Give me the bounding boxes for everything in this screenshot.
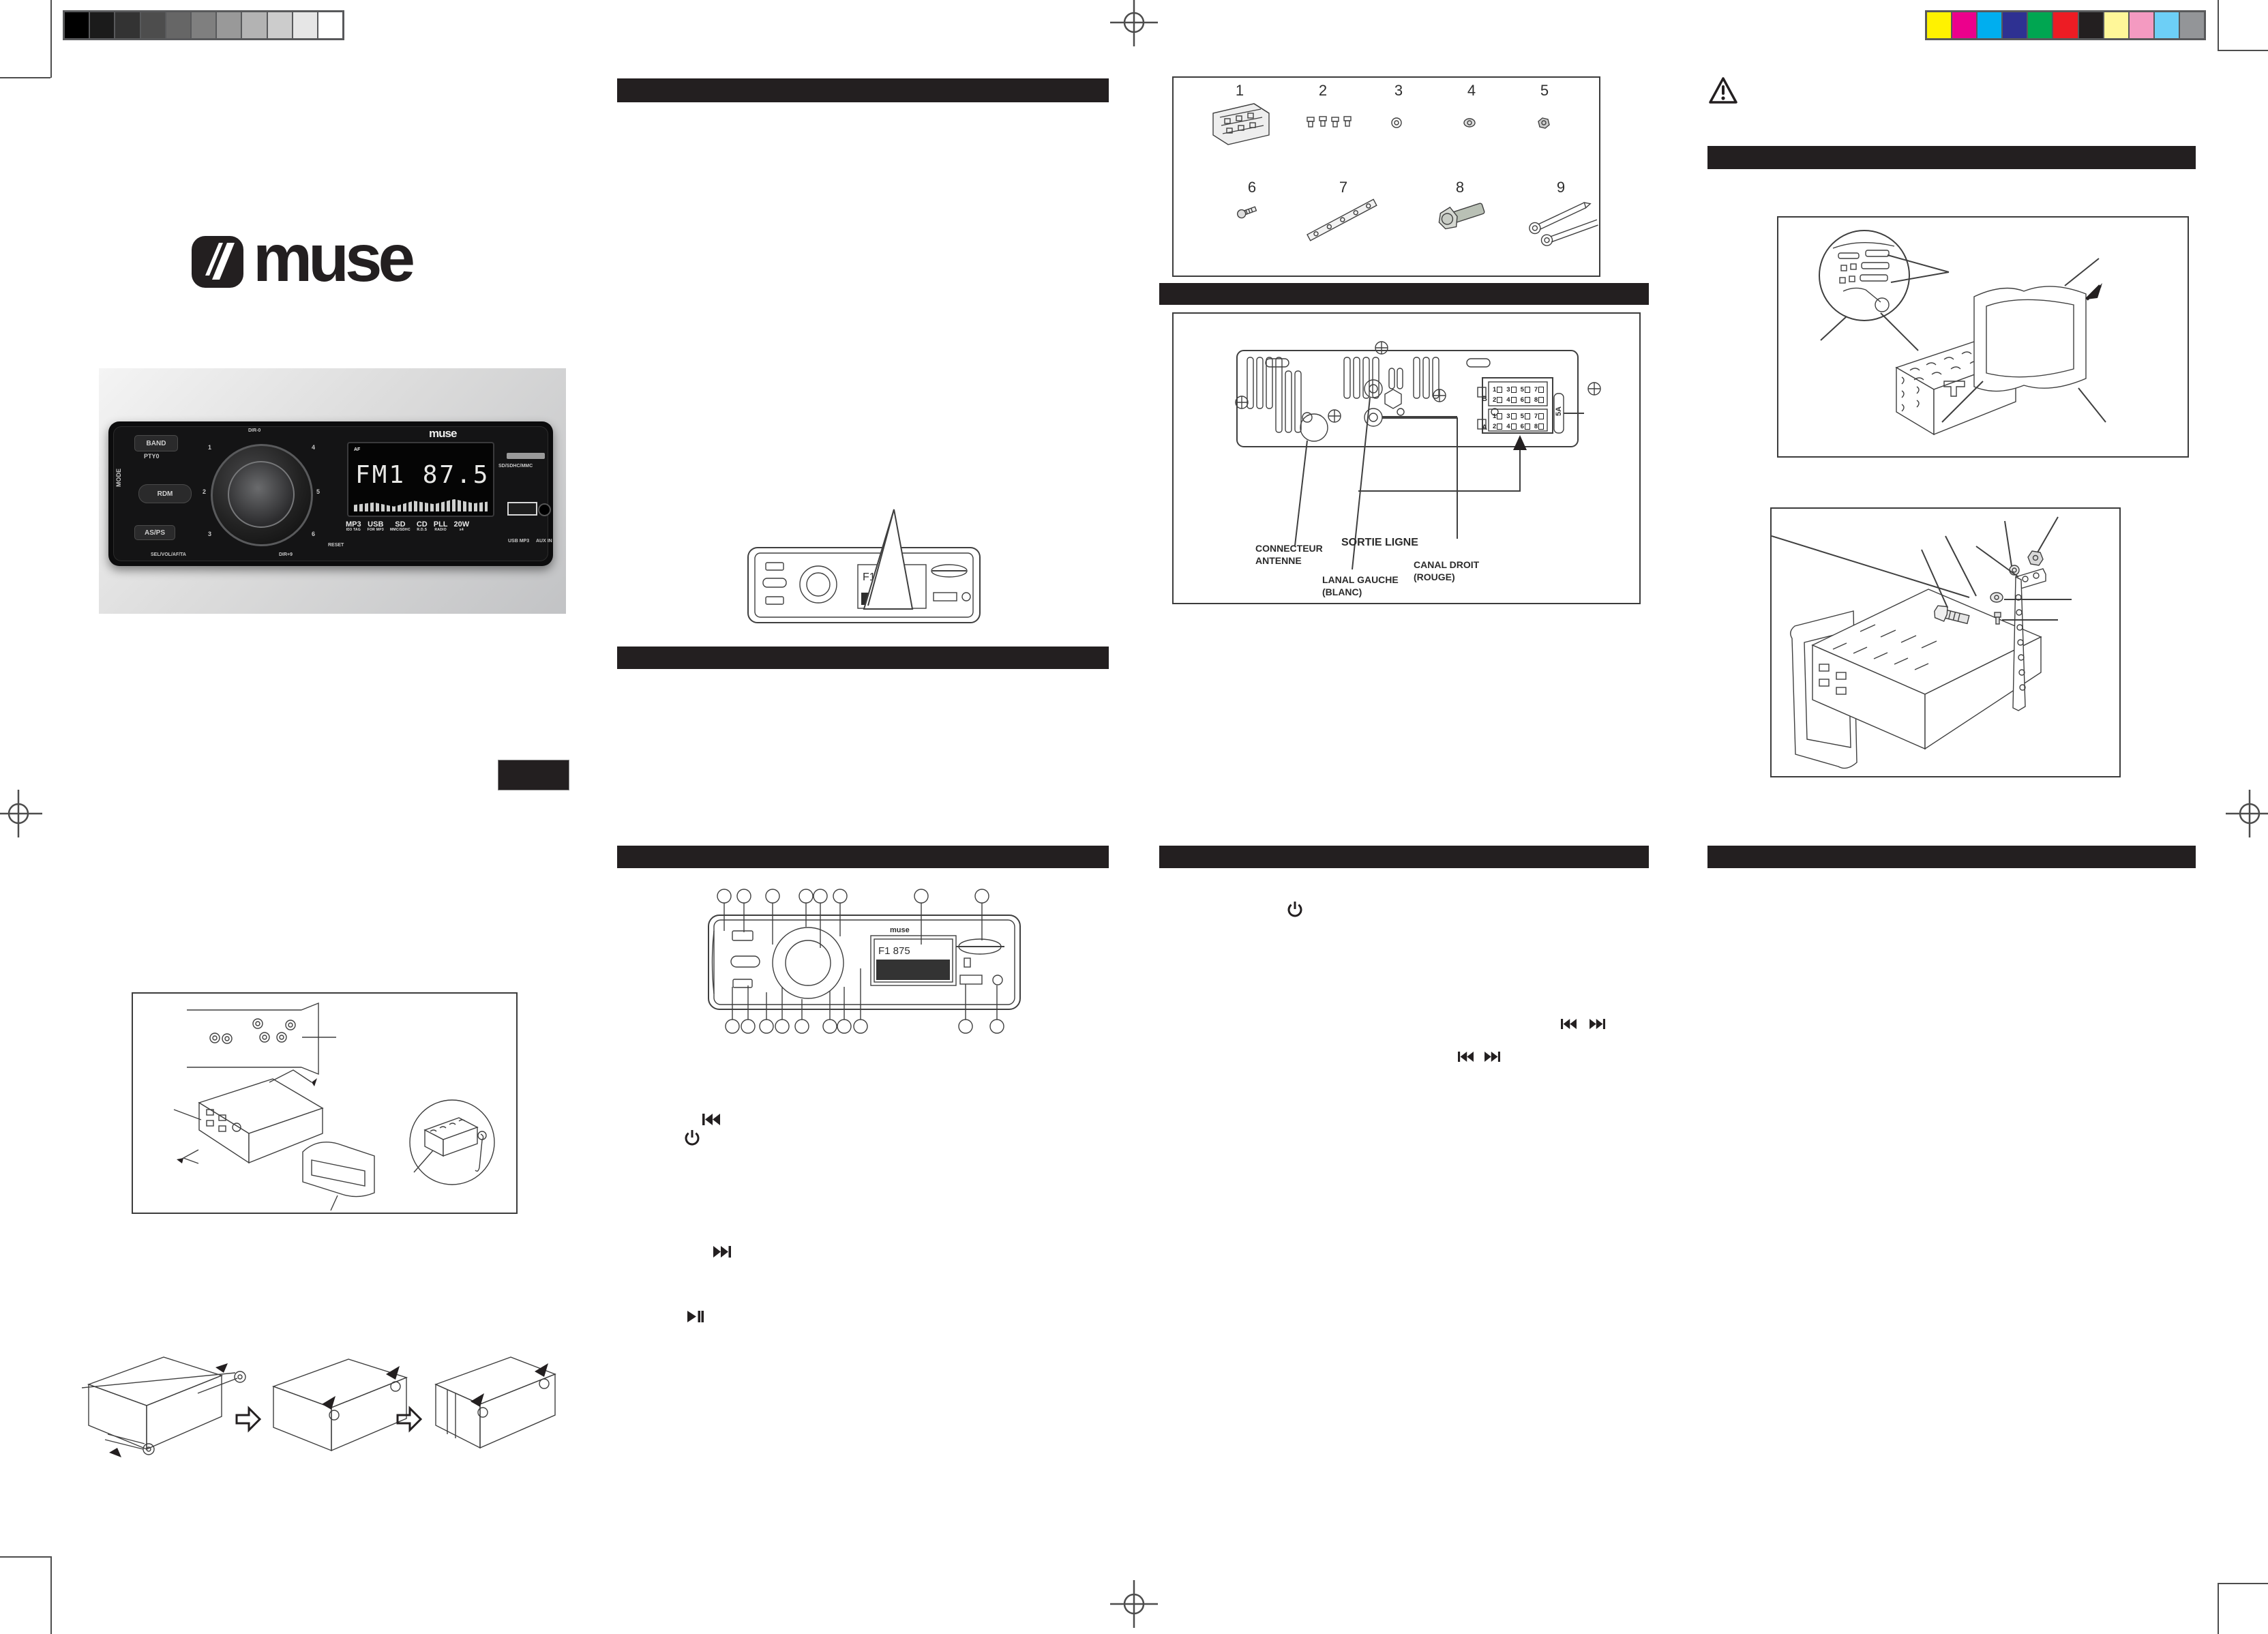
dir-minus-label: DIR-0 [248,428,260,433]
volume-knob [211,444,313,546]
display-equalizer [354,495,488,511]
aux-label: AUX IN [536,539,552,544]
mini-stereo-diagram: muse F1 875 [747,508,982,627]
section-bar-col2-2 [617,647,1109,669]
skip-back-icon-col3b [1457,1052,1474,1062]
pin-number: 4 [1506,396,1516,404]
step-arrow-2 [398,1408,421,1430]
product-photo: BAND PTY0 MODE RDM AS/PS 1 2 3 4 5 6 DIR… [99,368,566,614]
preset-2: 2 [203,488,206,495]
calibration-swatch [1952,12,1978,38]
pin-number: 3 [1506,413,1516,420]
calibration-swatch [217,12,242,38]
preset-6: 6 [312,531,315,537]
manual-page: muse BAND PTY0 MODE RDM AS/PS 1 2 3 4 5 … [0,0,2268,1634]
photo-display: AF FM1 87.5 [347,442,494,517]
crop-mark-bottom-right [2218,1583,2219,1634]
sel-vol-caption: SEL/VOL/AF/TA [151,552,186,557]
calibration-swatch [2028,12,2053,38]
feature-badge: MP3ID3 TAG [346,521,361,532]
section-bar-col4-1 [1707,146,2196,169]
calibration-swatch [90,12,115,38]
power-icon [684,1129,700,1146]
pin-row-a1: 1357 [1493,413,1544,420]
asps-button: AS/PS [134,525,175,540]
pin-number: 5 [1521,413,1530,420]
crop-mark-bottom-left [50,1556,52,1634]
aux-jack [538,503,551,516]
preset-4: 4 [312,444,315,451]
pin-number: 8 [1534,396,1544,404]
feature-badge: USBFOR MP3 [368,521,384,532]
play-pause-icon [687,1311,704,1322]
bracket-mounting-box [1770,507,2121,777]
calibration-swatch [2155,12,2180,38]
registration-mark-right-middle [2219,783,2268,844]
skip-back-icon-col3a [1560,1019,1577,1029]
feature-badge: CDR.D.S [417,521,428,532]
preset-5: 5 [316,488,320,495]
line-out-label: SORTIE LIGNE [1341,536,1418,550]
pin-number: 3 [1506,386,1516,393]
right-channel-label: CANAL DROIT(ROUGE) [1414,559,1479,583]
svg-text:muse: muse [890,926,910,934]
color-calibration-bar [1925,10,2206,40]
section-bar-col2-3 [617,846,1109,868]
calibration-swatch [318,12,342,38]
display-frequency: FM1 87.5 [355,461,490,489]
calibration-swatch [166,12,192,38]
feature-badge: SDMMC/SDHC [390,521,411,532]
calibration-swatch [2130,12,2155,38]
svg-text:F1 875: F1 875 [878,945,910,957]
svg-text:A: A [1482,424,1487,432]
preset-3: 3 [208,531,211,537]
section-bar-col3-1 [1159,283,1649,305]
calibration-swatch [141,12,166,38]
install-overview-drawing [133,994,516,1213]
svg-text:B: B [1482,395,1487,403]
usb-port [507,502,537,516]
pin-number: 6 [1521,423,1530,430]
rdm-button: RDM [138,484,192,503]
photo-muse-logo: muse [429,427,456,441]
pin-row-b2: 2468 [1493,396,1544,404]
calibration-swatch [2053,12,2078,38]
calibration-swatch [242,12,267,38]
skip-forward-icon-col3a [1589,1019,1606,1029]
pin-row-a2: 2468 [1493,423,1544,430]
calibration-swatch [2180,12,2204,38]
rear-connections-box: 5A B A 1357 2468 1357 2468 CONNECTEURANT… [1172,312,1641,604]
crop-mark-top-left [50,0,52,78]
pin-number: 1 [1493,413,1502,420]
sd-label: SD/SDHC/MMC [498,464,533,469]
calibration-swatch [268,12,293,38]
calibration-swatch [65,12,90,38]
skip-forward-icon-col3b [1484,1052,1501,1062]
crop-mark-top-right [2218,0,2219,51]
section-bar-col4-2 [1707,846,2196,868]
svg-text:5A: 5A [1555,406,1563,416]
warning-icon [1708,76,1738,106]
calibration-swatch [2003,12,2028,38]
preset-1: 1 [208,444,211,451]
removal-steps-diagram [82,1347,559,1463]
calibration-swatch [1978,12,2003,38]
display-af: AF [354,447,360,452]
registration-mark-left-middle [0,783,49,844]
mode-label: MODE [115,469,122,487]
antenna-label: CONNECTEURANTENNE [1255,543,1323,567]
feature-badge: PLLRADIO [434,521,448,532]
removal-step-3 [436,1357,555,1448]
rear-panel-drawing: 5A B A [1174,314,1639,603]
dir-plus-label: DIR+9 [279,552,293,557]
car-radio-photo: BAND PTY0 MODE RDM AS/PS 1 2 3 4 5 6 DIR… [108,421,553,566]
pin-number: 7 [1534,413,1544,420]
calibration-swatch [115,12,140,38]
bracket-mounting-drawing [1772,509,2119,776]
language-marker-box [498,760,569,790]
sleeve-installation-drawing [1778,218,2188,456]
power-icon-col3 [1287,900,1303,918]
skip-forward-icon [713,1246,731,1258]
antenna-connector [1300,414,1328,441]
calibration-swatch [1927,12,1952,38]
sleeve-installation-box [1777,216,2189,458]
usb-label: USB MP3 [508,539,529,544]
removal-step-1 [82,1357,245,1457]
front-panel-callout-diagram: muse F1 875 [702,883,1030,1040]
muse-logo-icon [192,236,243,288]
cutout-screws [210,1019,295,1043]
pty-label: PTY0 [144,453,160,460]
install-overview-box [132,992,518,1214]
registration-mark-top-center [1103,0,1165,53]
pin-number: 7 [1534,386,1544,393]
pin-number: 1 [1493,386,1502,393]
calibration-swatch [2104,12,2130,38]
feature-badge: 20Wx4 [454,521,470,532]
calibration-swatch [293,12,318,38]
left-channel-label: LANAL GAUCHE(BLANC) [1322,574,1399,598]
reset-label: RESET [328,543,344,548]
band-button: BAND [134,435,178,451]
supplied-parts-box: 1 2 3 4 5 6 7 8 9 [1172,76,1600,277]
pin-number: 2 [1493,423,1502,430]
parts-illustrations [1174,78,1599,276]
muse-logo-word: muse [253,234,411,282]
pin-number: 4 [1506,423,1516,430]
muse-logo: muse [192,235,411,288]
step-arrow-1 [237,1408,260,1430]
pin-row-b1: 1357 [1493,386,1544,393]
grayscale-calibration-bar [63,10,344,40]
registration-mark-bottom-center [1103,1573,1165,1634]
removal-step-2 [273,1359,406,1451]
calibration-swatch [192,12,217,38]
section-bar-col3-2 [1159,846,1649,868]
pin-number: 6 [1521,396,1530,404]
feature-badges: MP3ID3 TAGUSBFOR MP3SDMMC/SDHCCDR.D.SPLL… [346,521,494,532]
pin-number: 5 [1521,386,1530,393]
sd-slot [507,453,545,459]
pin-number: 8 [1534,423,1544,430]
skip-back-icon [702,1114,720,1125]
pin-number: 2 [1493,396,1502,404]
section-bar-col2-1 [617,78,1109,102]
calibration-swatch [2079,12,2104,38]
